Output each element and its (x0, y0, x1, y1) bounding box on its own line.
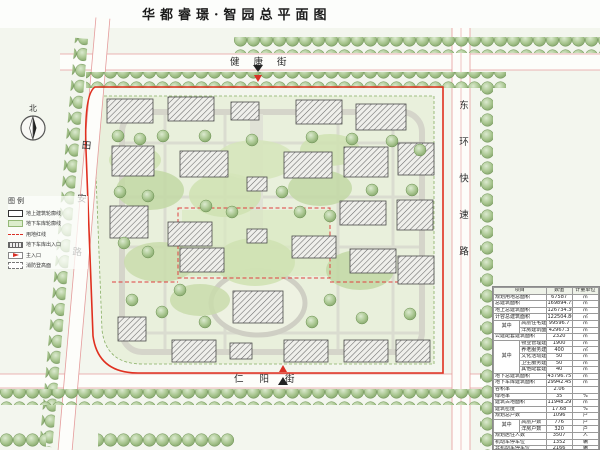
table-value-cell: ㎡ (572, 301, 598, 308)
table-value-cell: 40 (546, 367, 572, 374)
table-label-cell: 绿地率 (494, 393, 547, 400)
north-arrow-icon (19, 113, 47, 143)
indicator-table: 项目数值计量单位规划用地总面积67587㎡总建筑面积169894.75㎡地上总建… (492, 286, 600, 450)
table-label-cell: 非机动车停车位 (494, 446, 547, 450)
table-label-cell: 建筑占地面积 (494, 400, 547, 407)
table-value-cell: 户 (572, 413, 598, 420)
table-row: 规划居住人数3507人 (494, 433, 599, 440)
table-value-cell: 辆 (572, 439, 598, 446)
table-value-cell: 99596.7 (546, 320, 572, 327)
table-value-cell: 11948.29 (546, 400, 572, 407)
red-line-icon (8, 234, 23, 235)
table-label-cell: 公建配套建筑面积 (494, 334, 547, 341)
table-label-cell: 卫生服务建筑面积 (520, 360, 546, 367)
table-group-cell: 其中 (494, 320, 520, 333)
table-label-cell: 规划居住人数 (494, 433, 547, 440)
table-row: 总建筑面积169894.75㎡ (494, 301, 599, 308)
table-row: 规划用地总面积67587㎡ (494, 294, 599, 301)
table-value-cell: 3507 (546, 433, 572, 440)
table-row: 机动车停车位1352辆 (494, 439, 599, 446)
table-label-cell: 高层户数 (520, 419, 546, 426)
table-value-cell: 人 (572, 433, 598, 440)
legend-item-label: 用地红线 (26, 231, 46, 238)
table-row: 计容总建筑面积122504.86㎡ (494, 314, 599, 321)
table-row: 建筑占地面积11948.29㎡ (494, 400, 599, 407)
table-value-cell: ㎡ (572, 367, 598, 374)
plan-title: 华都睿璟·智园总平面图 (142, 4, 332, 23)
garage-outline-icon (8, 220, 23, 227)
garage-entrance-icon (8, 242, 23, 248)
table-value-cell: 67587 (546, 294, 572, 301)
table-label-cell: 洋房户数 (520, 426, 546, 433)
fire-lane-icon (8, 262, 23, 269)
table-label-cell: 容积率 (494, 386, 547, 393)
table-group-cell: 其中 (494, 419, 520, 432)
legend-item: 地下车库出入口 (8, 241, 88, 248)
table-label-cell: 文化活动建筑面积 (520, 353, 546, 360)
indicator-table-grid: 项目数值计量单位规划用地总面积67587㎡总建筑面积169894.75㎡地上总建… (493, 287, 599, 450)
north-arrow: 北 (14, 104, 52, 147)
table-value-cell: ㎡ (572, 340, 598, 347)
table-value-cell: ㎡ (572, 294, 598, 301)
table-row: 建筑密度17.68% (494, 406, 599, 413)
legend-item-label: 主入口 (26, 252, 41, 259)
table-value-cell: ㎡ (572, 320, 598, 327)
table-label-cell: 地上总建筑面积 (494, 307, 547, 314)
street-label-top: 健康街 (230, 54, 301, 68)
table-value-cell: ㎡ (572, 327, 598, 334)
table-header: 项目 (494, 288, 547, 295)
table-value-cell: 户 (572, 426, 598, 433)
street-label-bottom: 仁阳街 (234, 371, 311, 385)
table-value-cell: % (572, 393, 598, 400)
table-value-cell: 50 (546, 360, 572, 367)
table-row: 其中高层住宅建筑面积99596.7㎡ (494, 320, 599, 327)
table-label-cell: 洋房建筑面积 (520, 327, 546, 334)
legend-item-label: 地下车库轮廓线 (26, 220, 61, 227)
table-value-cell: 169894.75 (546, 301, 572, 308)
table-label-cell: 计容总建筑面积 (494, 314, 547, 321)
legend-item-label: 地下车库出入口 (26, 241, 61, 248)
table-value-cell: 29942.45 (546, 380, 572, 387)
table-value-cell: 35 (546, 393, 572, 400)
table-row: 绿地率35% (494, 393, 599, 400)
table-row: 地下车库建筑面积29942.45㎡ (494, 380, 599, 387)
table-value-cell: ㎡ (572, 334, 598, 341)
table-label-cell: 总建筑面积 (494, 301, 547, 308)
street-label-right: 东环快速路 (455, 100, 469, 283)
table-label-cell: 高层住宅建筑面积 (520, 320, 546, 327)
table-value-cell: 50 (546, 353, 572, 360)
table-row: 规划总户数1096户 (494, 413, 599, 420)
table-value-cell: 17.68 (546, 406, 572, 413)
north-label: 北 (14, 104, 52, 113)
legend-item-label: 地上建筑轮廓线 (26, 210, 61, 217)
table-value-cell: 1096 (546, 413, 572, 420)
legend-title: 图例 (8, 196, 88, 206)
table-value-cell: 2.06 (546, 386, 572, 393)
table-value-cell: 776 (546, 419, 572, 426)
table-row: 地上总建筑面积126734.36㎡ (494, 307, 599, 314)
table-label-cell: 地下总建筑面积 (494, 373, 547, 380)
table-label-cell: 机动车停车位 (494, 439, 547, 446)
table-label-cell: 其他配套建筑面积 (520, 367, 546, 374)
table-value-cell (572, 386, 598, 393)
table-value-cell: ㎡ (572, 373, 598, 380)
table-value-cell: ㎡ (572, 307, 598, 314)
table-group-cell: 其中 (494, 340, 520, 373)
table-value-cell: ㎡ (572, 400, 598, 407)
table-value-cell: 2320 (546, 334, 572, 341)
table-value-cell: ㎡ (572, 380, 598, 387)
table-value-cell: 320 (546, 426, 572, 433)
table-row: 容积率2.06 (494, 386, 599, 393)
table-header: 数值 (546, 288, 572, 295)
site-plan-canvas: 华都睿璟·智园总平面图 健康街 仁阳街 田安路 东环快速路 北 图例 地上建筑轮… (0, 0, 600, 450)
table-label-cell: 养老服务建筑面积 (520, 347, 546, 354)
table-header: 计量单位 (572, 288, 598, 295)
table-row: 地下总建筑面积43796.75㎡ (494, 373, 599, 380)
table-label-cell: 规划总户数 (494, 413, 547, 420)
table-value-cell: 43796.75 (546, 373, 572, 380)
table-value-cell: 1900 (546, 340, 572, 347)
top-road (60, 54, 600, 70)
legend-item: 用地红线 (8, 231, 88, 238)
main-entrance-icon (8, 252, 23, 259)
table-value-cell: 户 (572, 419, 598, 426)
table-value-cell: % (572, 406, 598, 413)
table-value-cell: 400 (546, 347, 572, 354)
table-row: 公建配套建筑面积2320㎡ (494, 334, 599, 341)
legend-items: 地上建筑轮廓线地下车库轮廓线用地红线地下车库出入口主入口消防登高面 (8, 210, 88, 270)
table-row: 非机动车停车位2166辆 (494, 446, 599, 450)
building-outline-icon (8, 210, 23, 217)
legend-item: 消防登高面 (8, 262, 88, 269)
table-value-cell: ㎡ (572, 360, 598, 367)
table-value-cell: ㎡ (572, 353, 598, 360)
table-label-cell: 规划用地总面积 (494, 294, 547, 301)
table-value-cell: 1352 (546, 439, 572, 446)
legend-item-label: 消防登高面 (26, 262, 51, 269)
table-row: 其中物业管理建筑面积1900㎡ (494, 340, 599, 347)
table-value-cell: 42967.3 (546, 327, 572, 334)
table-label-cell: 地下车库建筑面积 (494, 380, 547, 387)
legend-item: 地上建筑轮廓线 (8, 210, 88, 217)
table-row: 其中高层户数776户 (494, 419, 599, 426)
table-value-cell: ㎡ (572, 314, 598, 321)
table-header-row: 项目数值计量单位 (494, 288, 599, 295)
table-value-cell: 126734.36 (546, 307, 572, 314)
table-value-cell: 2166 (546, 446, 572, 450)
table-value-cell: 122504.86 (546, 314, 572, 321)
legend-box: 图例 地上建筑轮廓线地下车库轮廓线用地红线地下车库出入口主入口消防登高面 (8, 196, 88, 269)
table-label-cell: 物业管理建筑面积 (520, 340, 546, 347)
legend-item: 地下车库轮廓线 (8, 220, 88, 227)
table-value-cell: ㎡ (572, 347, 598, 354)
table-label-cell: 建筑密度 (494, 406, 547, 413)
legend-item: 主入口 (8, 252, 88, 259)
table-value-cell: 辆 (572, 446, 598, 450)
